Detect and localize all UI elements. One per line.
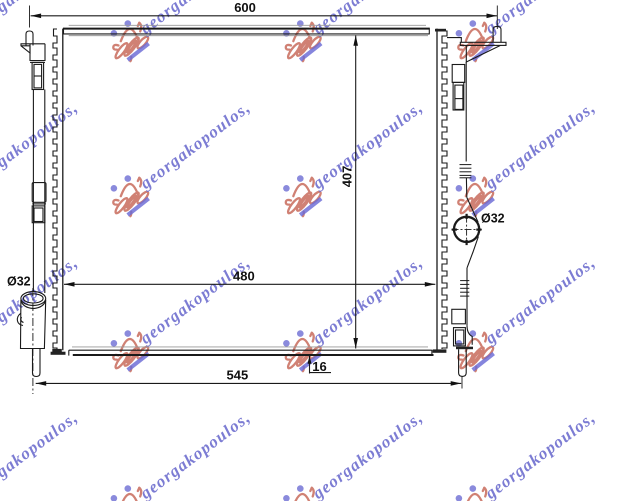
svg-text:545: 545 <box>227 368 249 383</box>
svg-text:480: 480 <box>233 268 255 283</box>
svg-text:407: 407 <box>339 166 354 188</box>
svg-text:600: 600 <box>234 0 256 15</box>
svg-text:Ø32: Ø32 <box>7 275 31 289</box>
svg-text:16: 16 <box>312 359 326 374</box>
svg-text:Ø32: Ø32 <box>481 212 505 226</box>
